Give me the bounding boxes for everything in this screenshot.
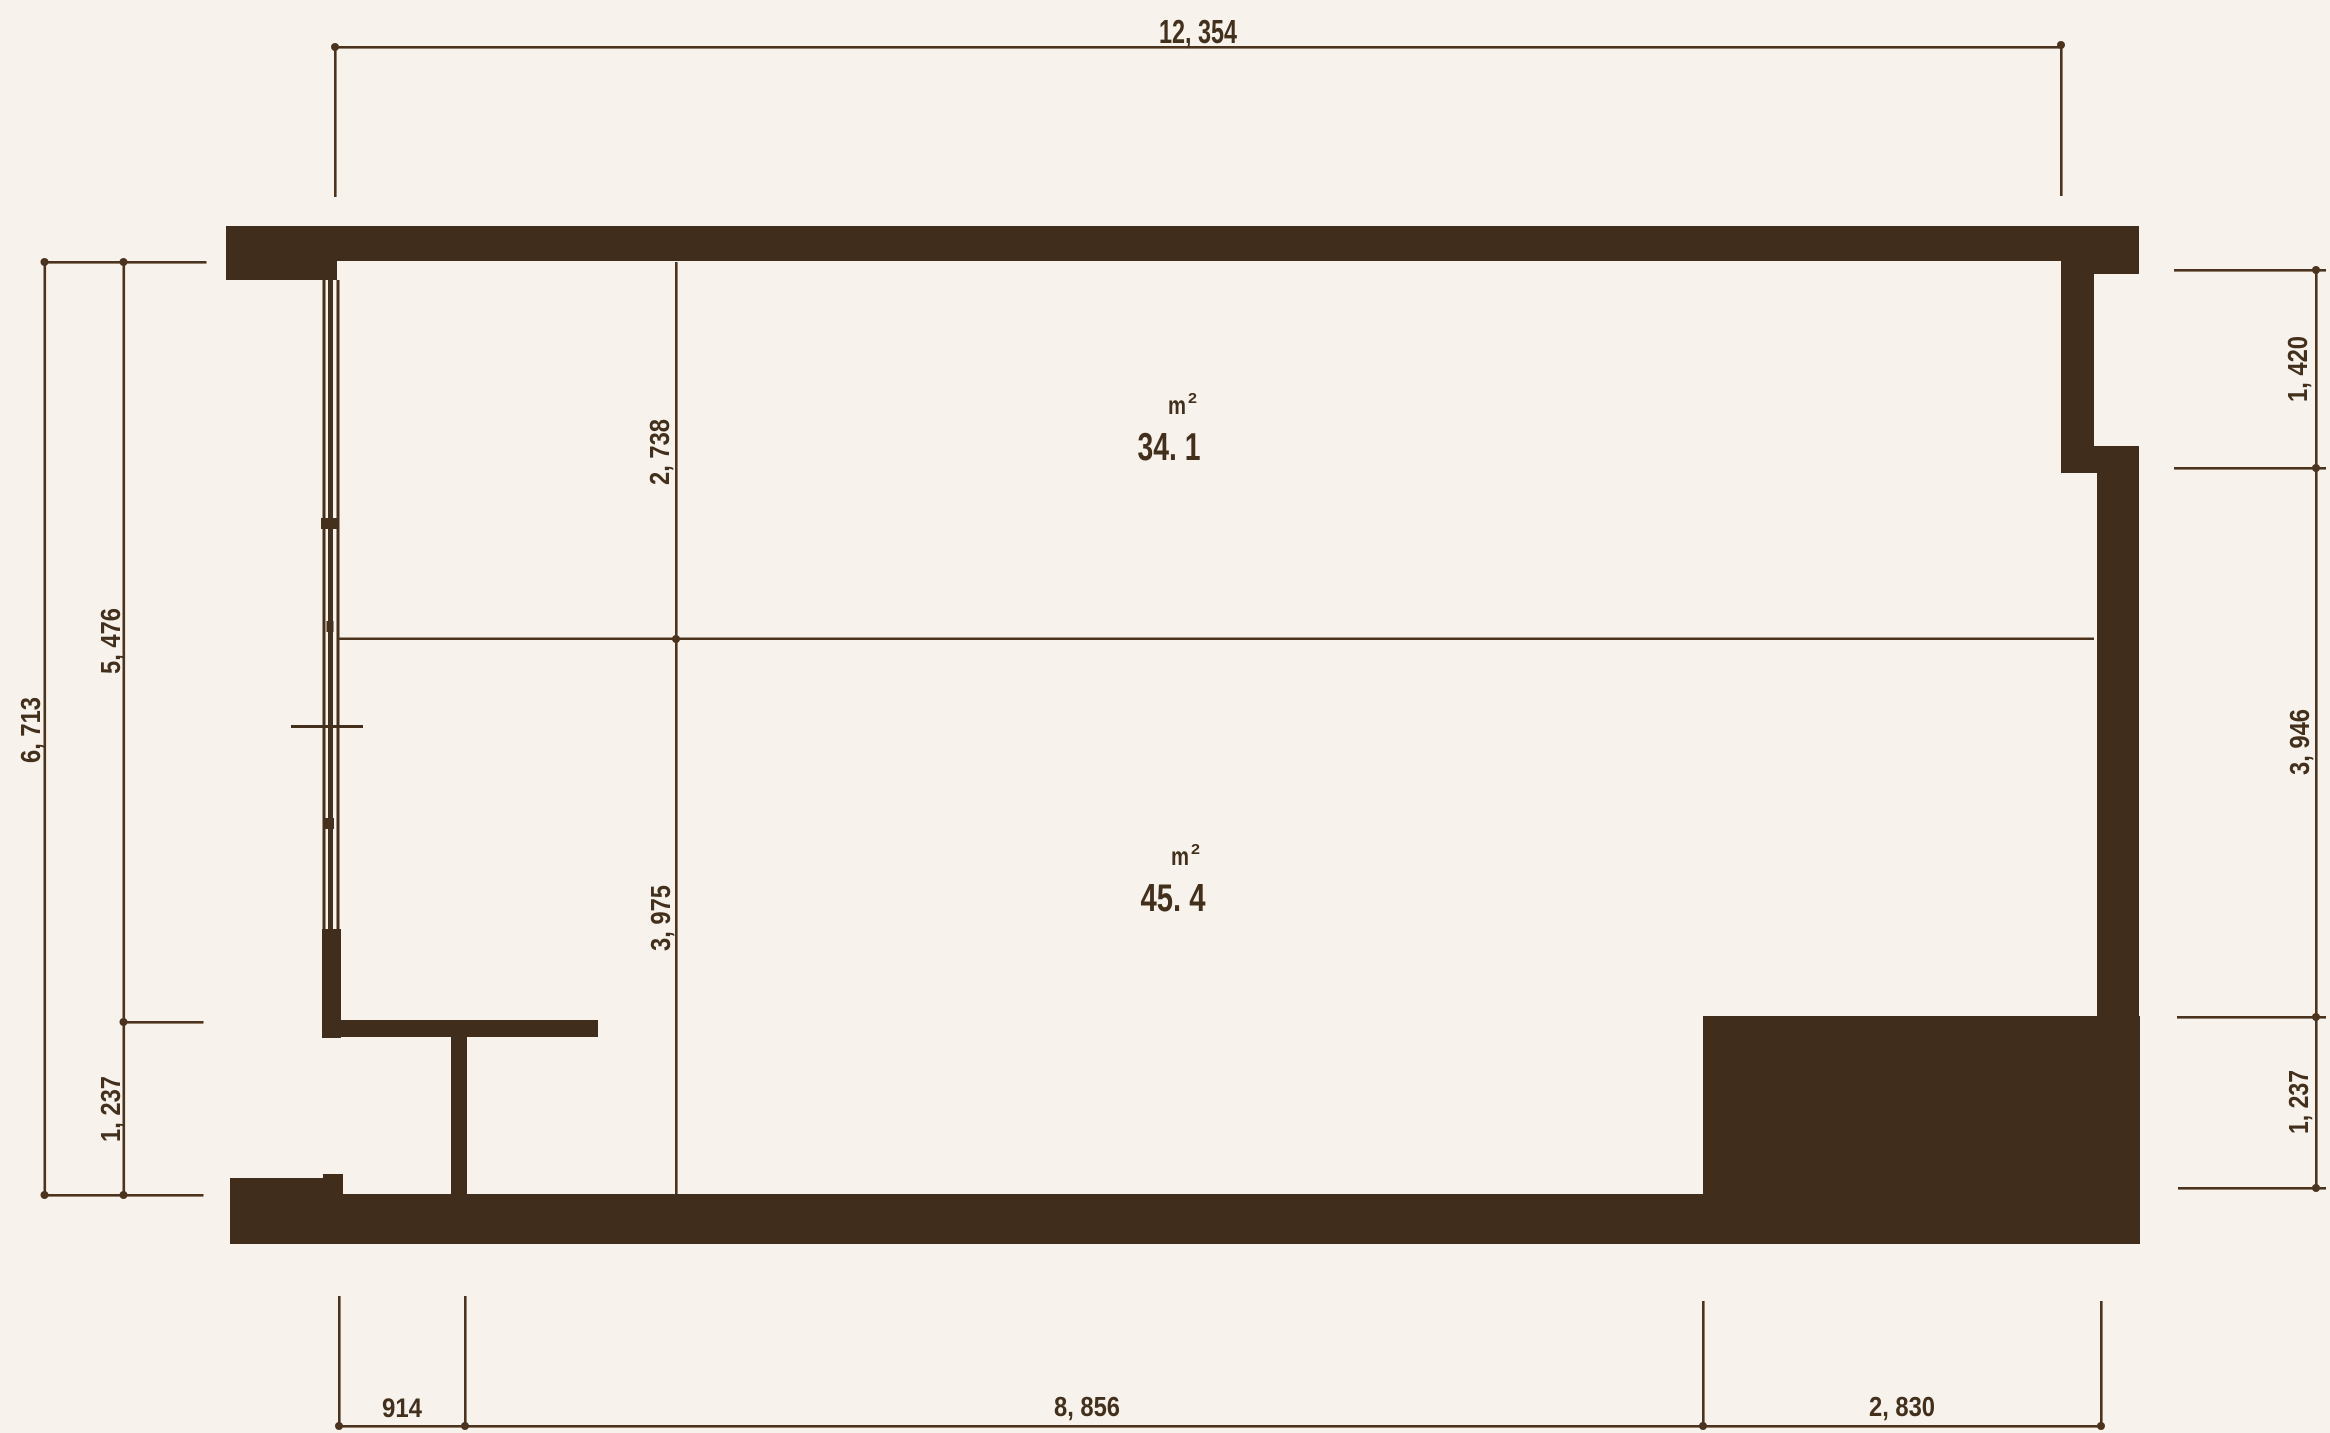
svg-text:3, 946: 3, 946 [2284, 709, 2315, 775]
svg-text:2, 830: 2, 830 [1869, 1391, 1935, 1422]
svg-text:2, 738: 2, 738 [644, 419, 675, 485]
svg-text:2: 2 [1188, 390, 1197, 407]
svg-text:1, 420: 1, 420 [2282, 336, 2313, 402]
svg-text:3, 975: 3, 975 [645, 885, 676, 951]
svg-text:1, 237: 1, 237 [95, 1076, 126, 1142]
svg-text:1, 237: 1, 237 [2283, 1070, 2314, 1134]
svg-text:34. 1: 34. 1 [1138, 426, 1201, 469]
svg-text:8, 856: 8, 856 [1054, 1391, 1120, 1422]
svg-text:2: 2 [1191, 841, 1200, 858]
svg-text:914: 914 [382, 1393, 422, 1423]
svg-text:m: m [1171, 841, 1189, 871]
svg-text:m: m [1168, 390, 1186, 420]
svg-text:45. 4: 45. 4 [1141, 877, 1206, 920]
svg-text:5, 476: 5, 476 [95, 608, 126, 674]
svg-text:12, 354: 12, 354 [1159, 13, 1237, 50]
svg-text:6, 713: 6, 713 [15, 697, 46, 763]
